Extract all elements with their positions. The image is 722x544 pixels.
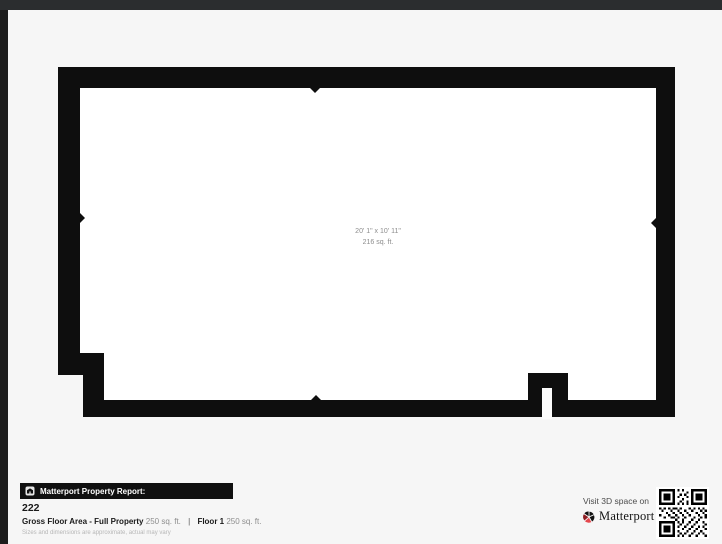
report-bar-label: Matterport Property Report: (40, 487, 145, 496)
property-name: 222 (22, 502, 40, 514)
room-label: 20' 1" x 10' 11" 216 sq. ft. (355, 226, 401, 248)
matterport-wordmark: Matterport (599, 509, 654, 524)
visit-3d-text: Visit 3D space on (583, 496, 645, 506)
gross-floor-area-label: Gross Floor Area - Full Property (22, 517, 144, 526)
building-icon (25, 486, 35, 496)
disclaimer-text: Sizes and dimensions are approximate, ac… (22, 530, 171, 536)
room-area: 216 sq. ft. (355, 237, 401, 248)
doorway-opening (542, 388, 552, 419)
matterport-logo-icon (582, 510, 596, 524)
report-title-bar: Matterport Property Report: (20, 483, 233, 499)
floor1-label: Floor 1 (197, 517, 224, 526)
gross-floor-area-value: 250 sq. ft. (146, 517, 181, 526)
floorplan (0, 0, 722, 544)
qr-code (656, 487, 709, 539)
qr-code-pattern (659, 489, 707, 537)
area-metrics: Gross Floor Area - Full Property 250 sq.… (22, 517, 261, 526)
floor1-value: 250 sq. ft. (226, 517, 261, 526)
room-dimensions: 20' 1" x 10' 11" (355, 226, 401, 237)
metrics-divider: | (188, 517, 190, 526)
matterport-link[interactable]: Matterport™ (582, 509, 662, 524)
